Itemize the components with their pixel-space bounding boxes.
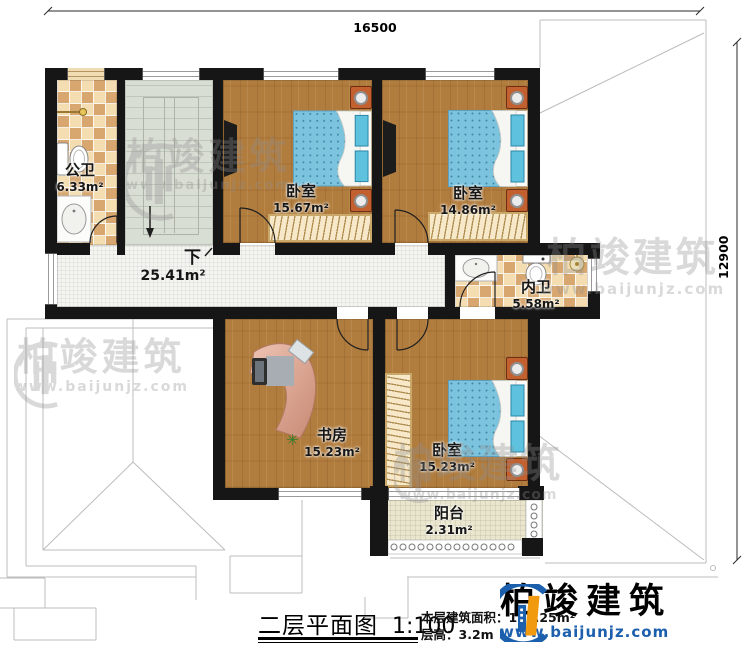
page-title: 二层平面图 xyxy=(258,606,378,640)
wall-segment xyxy=(372,80,382,243)
wall-segment xyxy=(213,307,225,500)
floor-area-label: 本层建筑面积： xyxy=(421,610,509,625)
room-name: 公卫 xyxy=(40,162,120,180)
watermark-url: www.baijunjz.com xyxy=(399,488,558,502)
wall-segment xyxy=(45,303,57,319)
watermark: 柏竣建筑 www.baijunjz.com xyxy=(394,444,562,502)
wall-segment xyxy=(45,307,337,319)
wall-segment xyxy=(445,255,455,307)
watermark: 柏竣建筑 www.baijunjz.com xyxy=(540,238,725,297)
title-underline xyxy=(258,642,418,643)
nightstand xyxy=(506,189,528,212)
stairs-down-label: 下 xyxy=(184,243,201,268)
floor-height-value: 3.2m xyxy=(459,627,494,642)
room-area: 15.67m² xyxy=(261,201,341,215)
wardrobe-bedroom1 xyxy=(268,214,372,242)
label-balcony: 阳台 2.31m² xyxy=(409,505,489,537)
title-underline xyxy=(258,637,418,640)
wall-segment xyxy=(45,68,57,253)
wall-segment xyxy=(428,307,460,319)
room-name: 卧室 xyxy=(428,185,508,203)
balcony-pier xyxy=(370,486,388,556)
watermark-name: 柏竣建筑 xyxy=(547,238,719,278)
corridor-area-label: 25.41m² xyxy=(128,268,218,284)
dimension-width-label: 16500 xyxy=(337,20,413,35)
room-name: 阳台 xyxy=(409,505,489,523)
window xyxy=(263,68,339,80)
window xyxy=(45,253,57,305)
tv-bedroom2 xyxy=(383,120,396,177)
brand-url: www.baijunjz.com xyxy=(500,623,672,641)
wall-segment xyxy=(373,319,385,488)
nightstand xyxy=(350,86,372,109)
floor-study xyxy=(225,319,373,488)
watermark-url: www.baijunjz.com xyxy=(14,380,189,394)
watermark-name: 柏竣建筑 xyxy=(394,444,562,484)
watermark-url: www.baijunjz.com xyxy=(126,179,291,192)
wall-segment xyxy=(368,307,397,319)
room-area: 2.31m² xyxy=(409,523,489,537)
floor-plan-canvas: 16500 12900 xyxy=(0,0,750,651)
wall-segment xyxy=(275,243,395,255)
room-area: 14.86m² xyxy=(428,203,508,217)
brand-logo: 柏竣建筑 www.baijunjz.com xyxy=(500,584,672,641)
watermark-url: www.baijunjz.com xyxy=(540,282,725,297)
window xyxy=(278,488,362,500)
room-area: 15.23m² xyxy=(292,445,372,459)
nightstand xyxy=(506,86,528,109)
label-public-bath: 公卫 6.33m² xyxy=(40,162,120,194)
wall-segment xyxy=(117,243,125,255)
room-area: 5.58m² xyxy=(496,297,576,311)
nightstand xyxy=(506,357,528,380)
floor-height-label: 层高： xyxy=(421,627,459,642)
nightstand xyxy=(350,189,372,212)
watermark: 柏竣建筑 www.baijunjz.com xyxy=(14,338,189,394)
window xyxy=(67,68,105,80)
balcony-post xyxy=(522,538,543,556)
wall-segment xyxy=(528,68,540,243)
label-bedroom2: 卧室 14.86m² xyxy=(428,185,508,217)
watermark: 柏竣建筑 www.baijunjz.com xyxy=(126,138,291,192)
wall-segment xyxy=(213,243,240,255)
room-name: 书房 xyxy=(292,427,372,445)
window xyxy=(142,68,200,80)
label-study: 书房 15.23m² xyxy=(292,427,372,459)
watermark-name: 柏竣建筑 xyxy=(17,338,185,376)
window xyxy=(425,68,495,80)
watermark-name: 柏竣建筑 xyxy=(126,138,290,175)
brand-name: 柏竣建筑 xyxy=(500,584,672,621)
room-area: 6.33m² xyxy=(40,180,120,194)
